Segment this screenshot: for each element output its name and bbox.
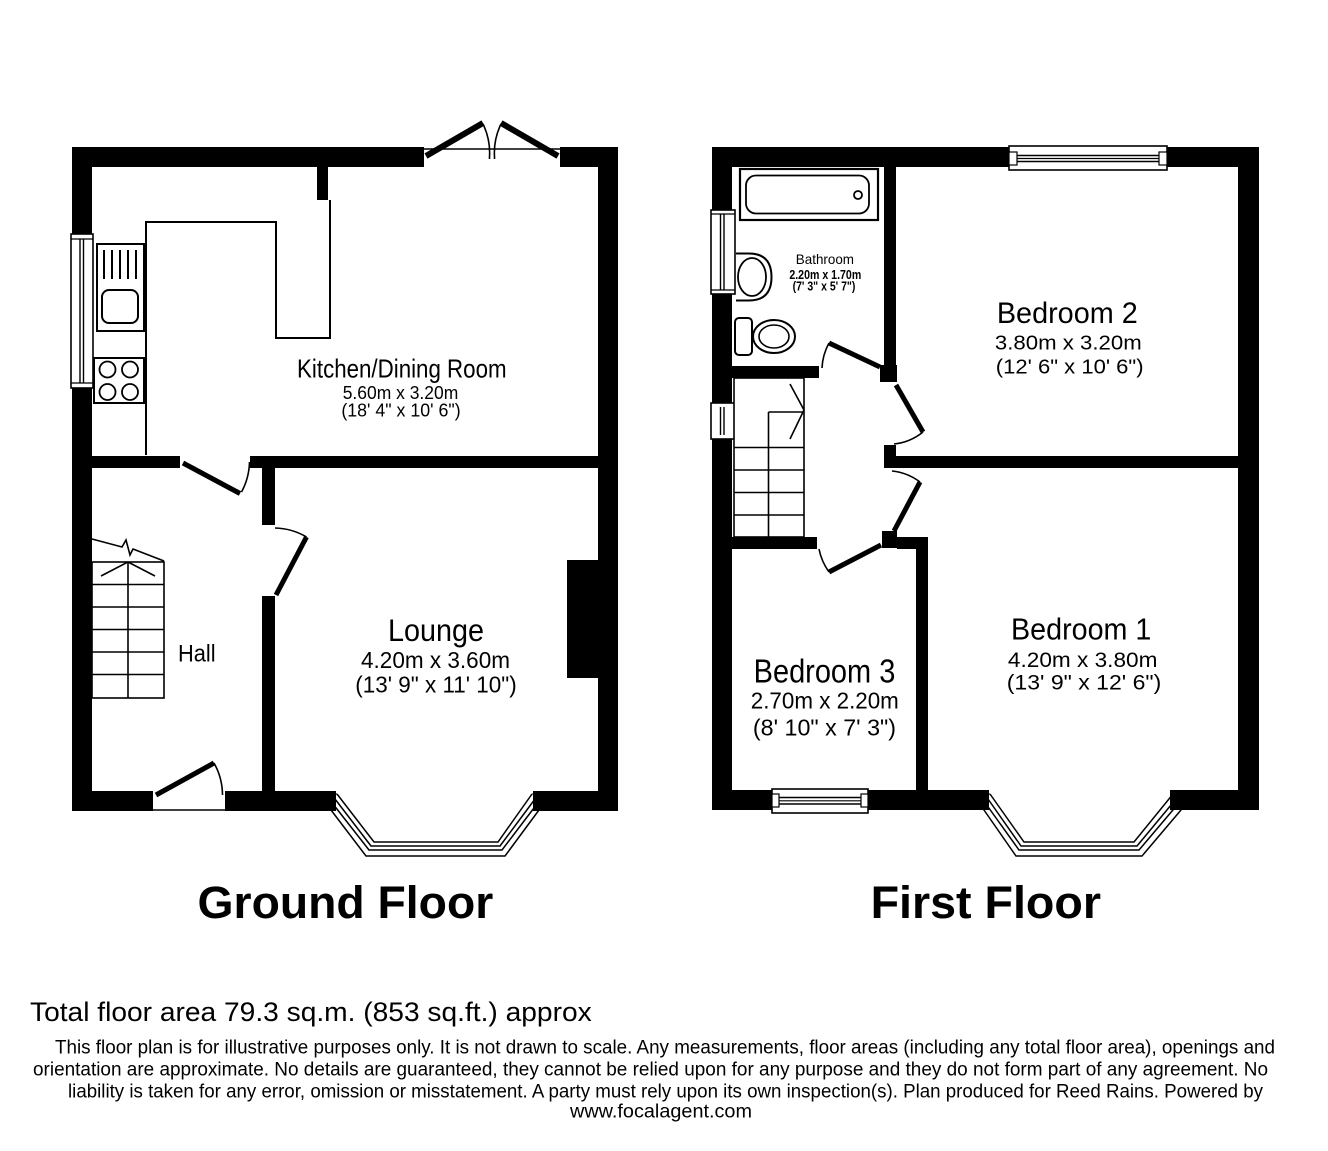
svg-text:(13' 9" x 11' 10"): (13' 9" x 11' 10") bbox=[355, 672, 517, 698]
svg-text:orientation are approximate. N: orientation are approximate. No details … bbox=[33, 1060, 1268, 1081]
svg-text:(12' 6" x 10' 6"): (12' 6" x 10' 6") bbox=[996, 356, 1144, 379]
svg-text:Ground Floor: Ground Floor bbox=[198, 877, 494, 928]
svg-text:Bedroom 1: Bedroom 1 bbox=[1011, 612, 1151, 647]
svg-text:Lounge: Lounge bbox=[388, 612, 484, 648]
svg-text:2.70m x 2.20m: 2.70m x 2.20m bbox=[751, 688, 899, 714]
svg-text:Kitchen/Dining Room: Kitchen/Dining Room bbox=[297, 354, 507, 384]
svg-text:Hall: Hall bbox=[178, 640, 216, 667]
svg-text:www.focalagent.com: www.focalagent.com bbox=[569, 1102, 752, 1123]
svg-text:(7' 3" x 5' 7"): (7' 3" x 5' 7") bbox=[793, 280, 856, 294]
svg-text:Bedroom 2: Bedroom 2 bbox=[997, 297, 1138, 330]
svg-text:4.20m x 3.80m: 4.20m x 3.80m bbox=[1008, 649, 1158, 672]
svg-text:First Floor: First Floor bbox=[871, 877, 1101, 928]
svg-text:This floor plan is for illustr: This floor plan is for illustrative purp… bbox=[55, 1038, 1275, 1059]
svg-text:liability is taken for any err: liability is taken for any error, omissi… bbox=[68, 1082, 1263, 1103]
svg-text:(18' 4" x 10' 6"): (18' 4" x 10' 6") bbox=[341, 401, 460, 421]
svg-text:Bathroom: Bathroom bbox=[796, 251, 854, 267]
svg-text:Bedroom 3: Bedroom 3 bbox=[754, 652, 896, 689]
svg-text:(8' 10" x 7' 3"): (8' 10" x 7' 3") bbox=[753, 715, 896, 741]
svg-text:Total floor area 79.3 sq.m. (8: Total floor area 79.3 sq.m. (853 sq.ft.)… bbox=[30, 997, 592, 1027]
svg-text:3.80m x 3.20m: 3.80m x 3.20m bbox=[995, 332, 1142, 355]
svg-text:4.20m x 3.60m: 4.20m x 3.60m bbox=[361, 647, 510, 673]
svg-text:(13' 9" x 12' 6"): (13' 9" x 12' 6") bbox=[1007, 672, 1162, 695]
